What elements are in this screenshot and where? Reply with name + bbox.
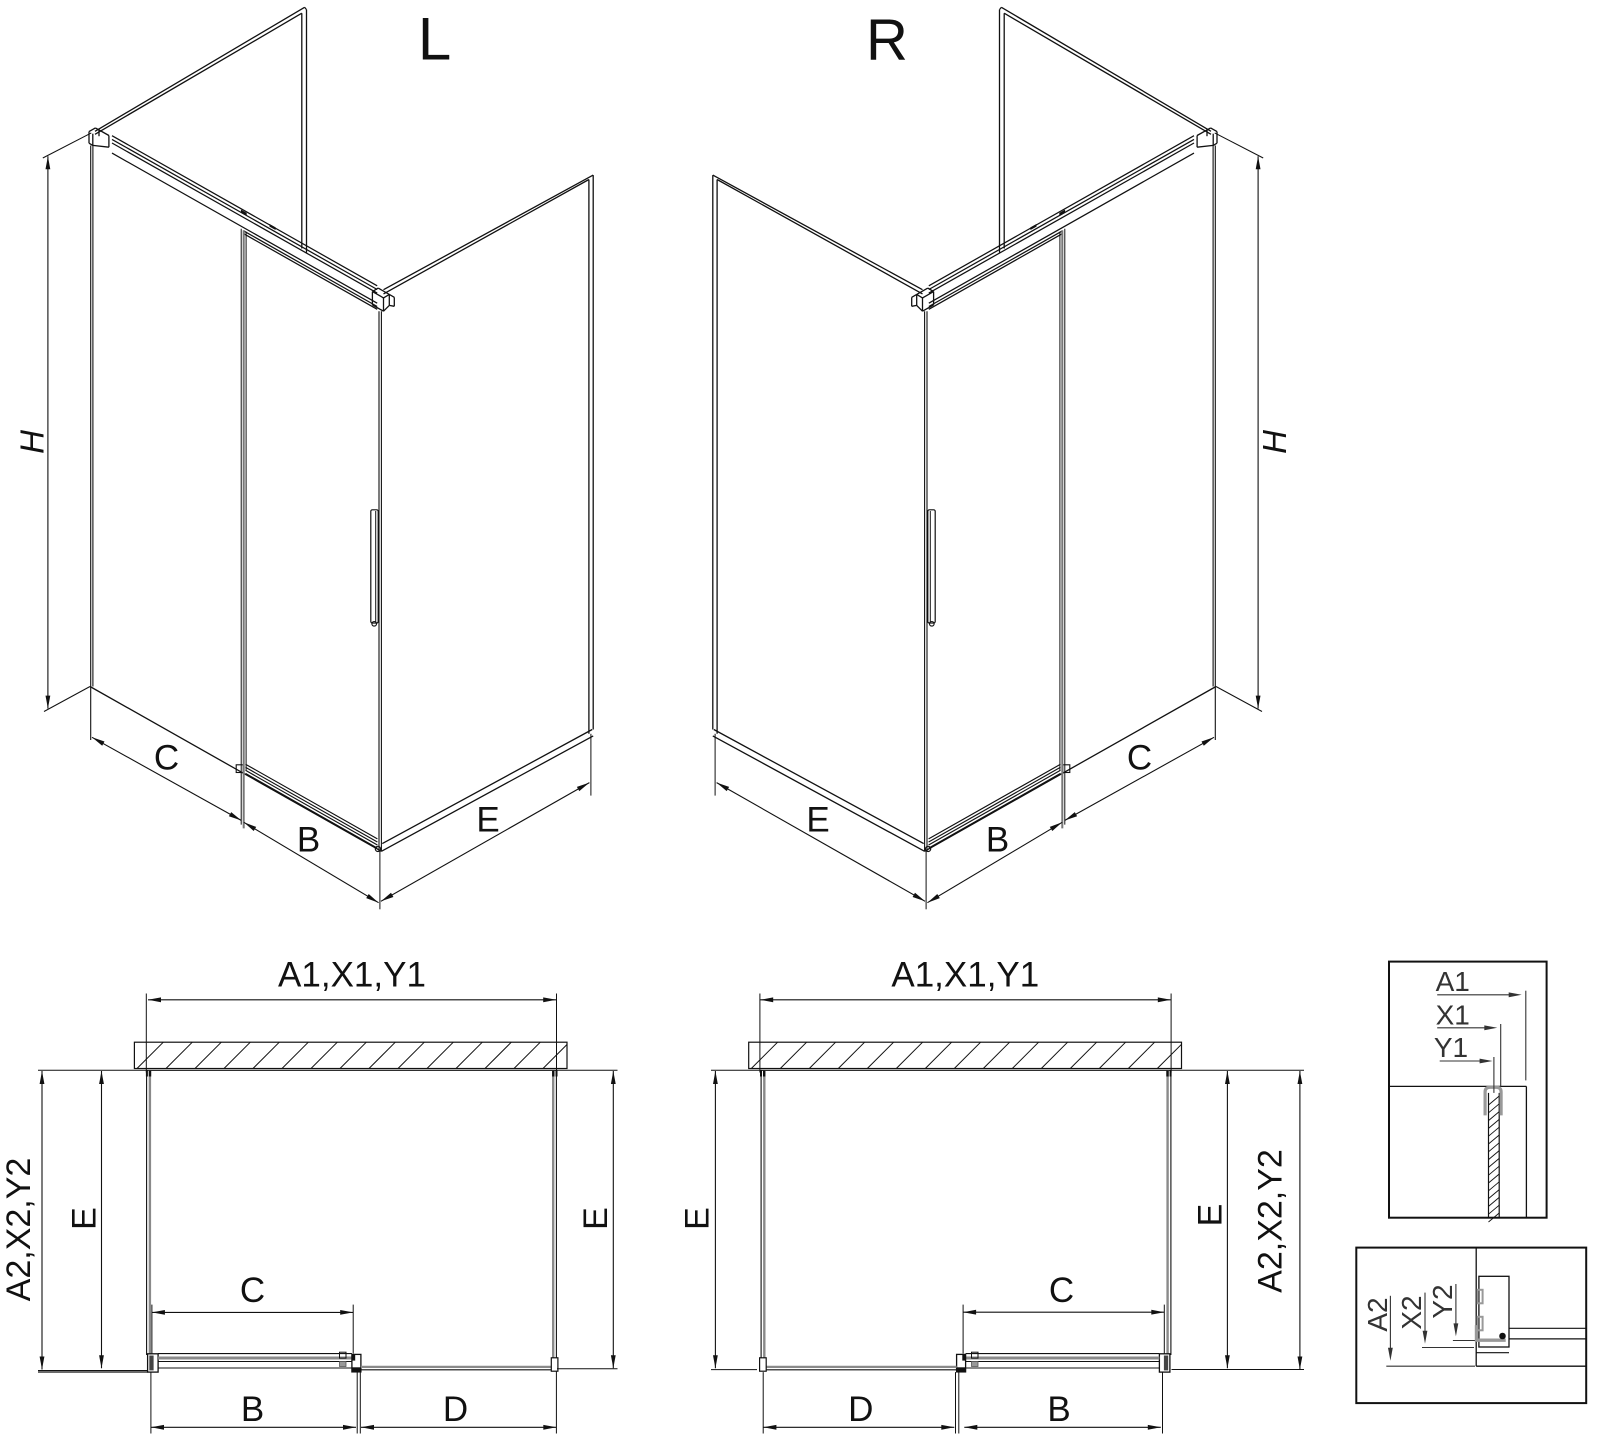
svg-text:A2,X2,Y2: A2,X2,Y2 xyxy=(1252,1149,1290,1293)
svg-text:L: L xyxy=(418,6,451,73)
svg-text:B: B xyxy=(1047,1390,1070,1429)
svg-text:A1: A1 xyxy=(1436,966,1470,997)
svg-text:H: H xyxy=(1256,430,1293,454)
svg-text:A1,X1,Y1: A1,X1,Y1 xyxy=(891,956,1039,995)
svg-text:C: C xyxy=(240,1271,265,1310)
svg-text:C: C xyxy=(1127,739,1152,778)
svg-text:E: E xyxy=(806,801,829,840)
svg-text:R: R xyxy=(866,8,908,73)
svg-text:X1: X1 xyxy=(1436,999,1470,1030)
svg-text:B: B xyxy=(297,821,320,860)
svg-text:A1,X1,Y1: A1,X1,Y1 xyxy=(278,956,426,995)
svg-text:C: C xyxy=(1049,1271,1074,1310)
svg-text:X2: X2 xyxy=(1396,1295,1427,1329)
svg-text:A2,X2,Y2: A2,X2,Y2 xyxy=(0,1158,38,1302)
svg-text:E: E xyxy=(476,801,499,840)
svg-text:E: E xyxy=(65,1207,103,1230)
svg-text:E: E xyxy=(679,1207,717,1230)
svg-text:D: D xyxy=(443,1390,468,1429)
svg-text:D: D xyxy=(848,1390,873,1429)
svg-text:C: C xyxy=(154,739,179,778)
svg-text:Y1: Y1 xyxy=(1434,1032,1468,1063)
svg-text:B: B xyxy=(986,821,1009,860)
svg-text:A2: A2 xyxy=(1362,1297,1393,1331)
svg-text:E: E xyxy=(1192,1204,1230,1227)
svg-text:H: H xyxy=(14,430,51,454)
svg-text:Y2: Y2 xyxy=(1427,1284,1458,1318)
svg-text:E: E xyxy=(577,1207,615,1230)
svg-text:B: B xyxy=(241,1390,264,1429)
